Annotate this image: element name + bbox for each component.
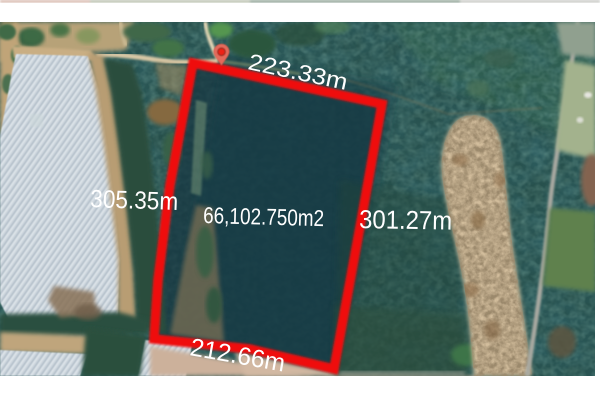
svg-text:301.27m: 301.27m	[359, 204, 453, 236]
svg-text:305.35m: 305.35m	[90, 185, 179, 216]
svg-text:66,102.750m2: 66,102.750m2	[203, 202, 325, 231]
